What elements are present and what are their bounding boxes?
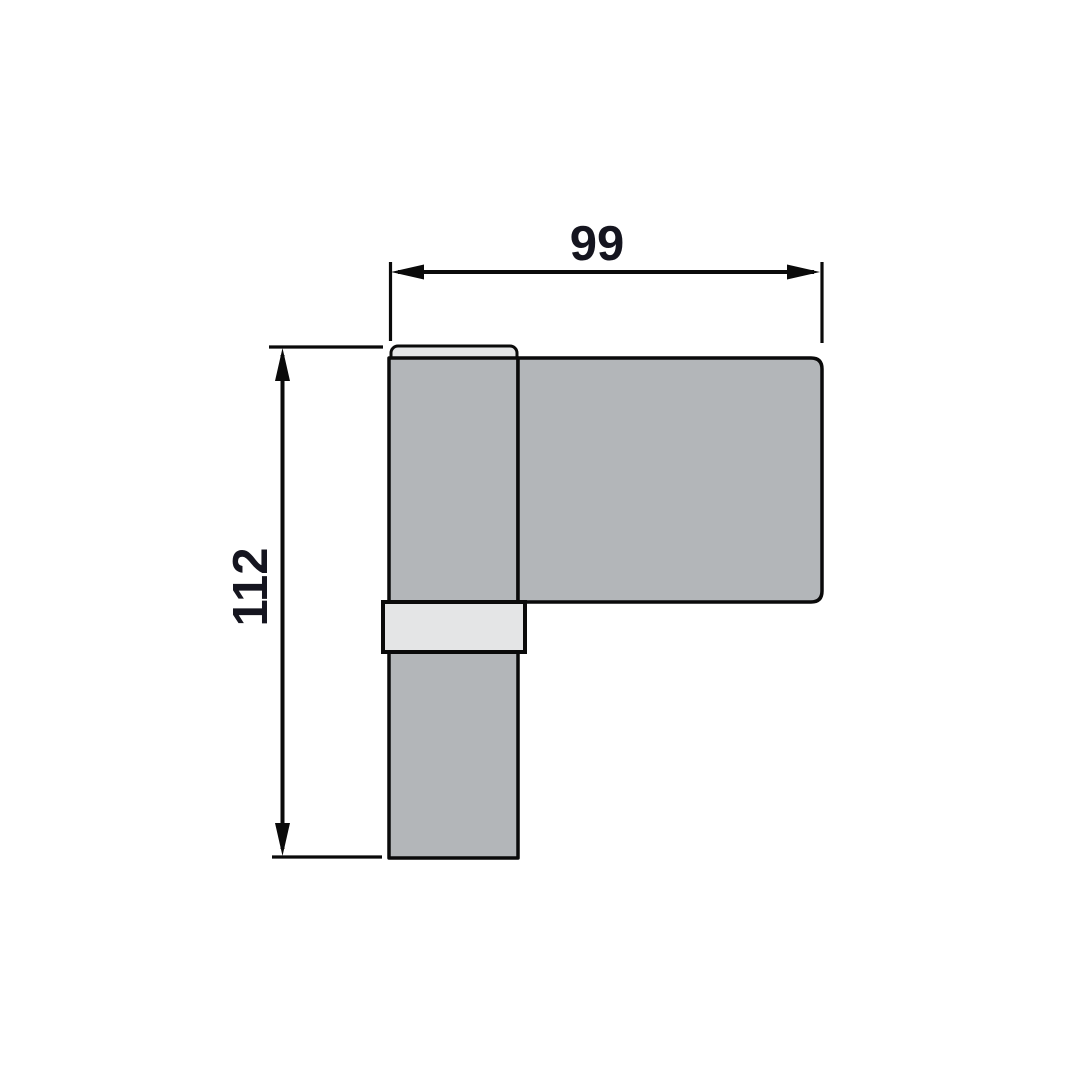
hinge-dimension-diagram: 99 112 — [0, 0, 1080, 1080]
height-dimension-label: 112 — [224, 547, 278, 626]
hinge-bushing-band — [383, 602, 525, 652]
width-dimension: 99 — [391, 217, 823, 343]
technical-drawing-canvas: 99 112 — [0, 0, 1080, 1080]
width-arrowhead-right — [787, 265, 820, 280]
width-dimension-label: 99 — [570, 217, 625, 271]
width-arrowhead-left — [391, 265, 424, 280]
hinge-parts — [383, 346, 822, 858]
height-arrowhead-top — [275, 348, 290, 381]
hinge-frame-leaf — [518, 358, 822, 602]
height-dimension: 112 — [224, 347, 383, 857]
height-arrowhead-bottom — [275, 823, 290, 856]
